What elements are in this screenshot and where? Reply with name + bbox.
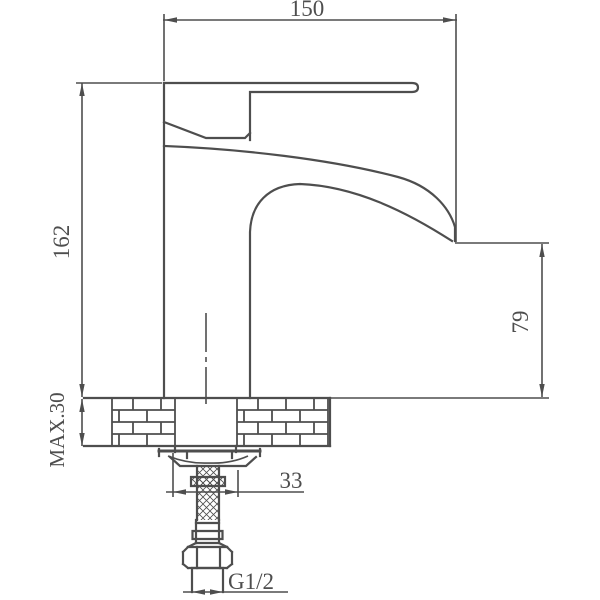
dim-label-overall-length: 150 bbox=[290, 0, 325, 21]
dimension-79: 79 bbox=[455, 243, 549, 397]
drawing-canvas: 150 162 MAX.30 79 33 G1/2 bbox=[0, 0, 600, 600]
faucet-outline bbox=[164, 83, 455, 398]
dim-label-overall-height: 162 bbox=[49, 225, 74, 260]
faucet-technical-drawing: 150 162 MAX.30 79 33 G1/2 bbox=[0, 0, 600, 600]
threaded-shank bbox=[191, 466, 225, 520]
handle-lever bbox=[164, 83, 418, 140]
brick-hatch-right bbox=[237, 398, 328, 446]
supply-connector bbox=[183, 520, 232, 592]
deck-section bbox=[84, 398, 549, 446]
dimension-g12: G1/2 bbox=[183, 569, 288, 595]
dim-label-thread-size: G1/2 bbox=[228, 569, 274, 594]
dimension-max30: MAX.30 bbox=[45, 392, 85, 467]
dim-label-spout-height: 79 bbox=[508, 311, 533, 334]
dimension-33: 33 bbox=[166, 453, 304, 497]
thread-fitting bbox=[192, 568, 223, 592]
dim-label-shank-width: 33 bbox=[280, 468, 303, 493]
spout-outer-curve bbox=[164, 146, 455, 241]
dim-label-deck-thickness: MAX.30 bbox=[45, 392, 69, 467]
spout-inner-curve bbox=[250, 184, 452, 398]
clamp-arcs bbox=[168, 456, 248, 463]
brick-hatch-left bbox=[112, 398, 175, 446]
dimension-150: 150 bbox=[163, 0, 457, 242]
dimension-162: 162 bbox=[49, 83, 162, 397]
hex-nut bbox=[183, 547, 232, 568]
mounting-hardware bbox=[159, 446, 260, 466]
handle-base bbox=[164, 122, 250, 138]
